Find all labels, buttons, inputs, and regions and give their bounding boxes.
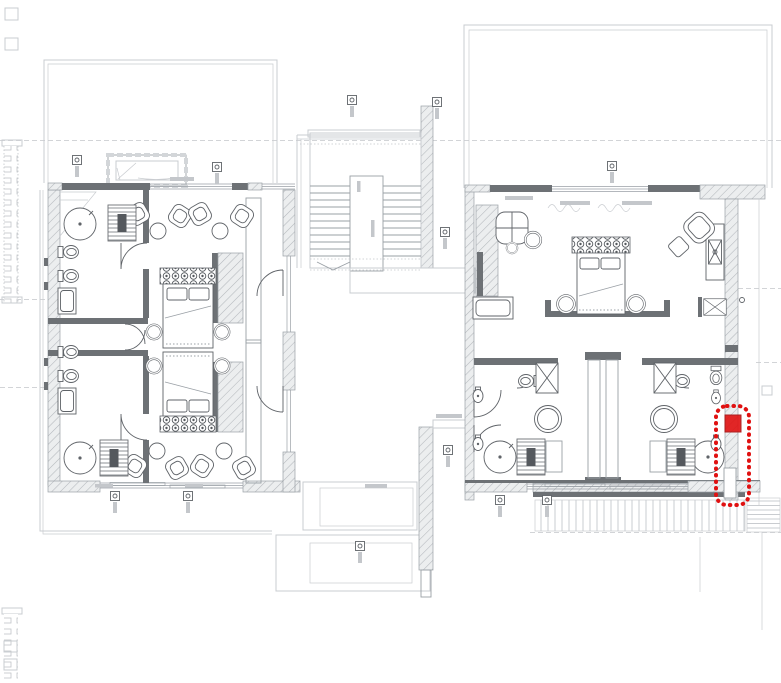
- xbox-icon: [654, 363, 676, 393]
- stair-core: [350, 176, 383, 271]
- table-icon: [506, 242, 518, 254]
- stair-wall: [421, 106, 433, 268]
- tub-icon: [64, 442, 96, 474]
- floor-plan-canvas: [0, 0, 781, 683]
- wall-left: [48, 190, 60, 485]
- xbox-icon: [704, 299, 727, 316]
- table-icon: [651, 406, 678, 433]
- toilet-icon: [58, 270, 79, 283]
- garden-wall: [419, 427, 433, 570]
- table-icon: [627, 295, 646, 314]
- xbox-icon: [536, 363, 558, 393]
- tub-icon: [64, 208, 96, 240]
- sauna-icon: [517, 439, 545, 475]
- bed: [160, 268, 216, 348]
- sauna-icon: [667, 439, 695, 475]
- toilet-icon: [58, 346, 79, 359]
- paper-background: [0, 0, 781, 683]
- closet: [218, 253, 243, 323]
- table-set: [496, 212, 528, 244]
- tub-icon: [484, 441, 516, 473]
- table-icon: [557, 295, 576, 314]
- table-icon: [146, 324, 162, 340]
- floor-plan-drawing: [0, 0, 781, 683]
- table-icon: [214, 358, 230, 374]
- table-icon: [214, 324, 230, 340]
- sauna-icon: [108, 205, 136, 241]
- bed: [160, 352, 216, 432]
- toilet-icon: [58, 246, 79, 259]
- table-icon: [535, 406, 562, 433]
- highlight-marker[interactable]: [725, 415, 741, 432]
- wall-left: [465, 190, 474, 500]
- bed: [572, 237, 630, 314]
- toilet-icon: [710, 366, 722, 384]
- sauna-icon: [100, 440, 128, 476]
- table-icon: [524, 231, 542, 249]
- wall-right: [283, 190, 295, 256]
- toilet-icon: [58, 370, 79, 383]
- table-icon: [146, 358, 162, 374]
